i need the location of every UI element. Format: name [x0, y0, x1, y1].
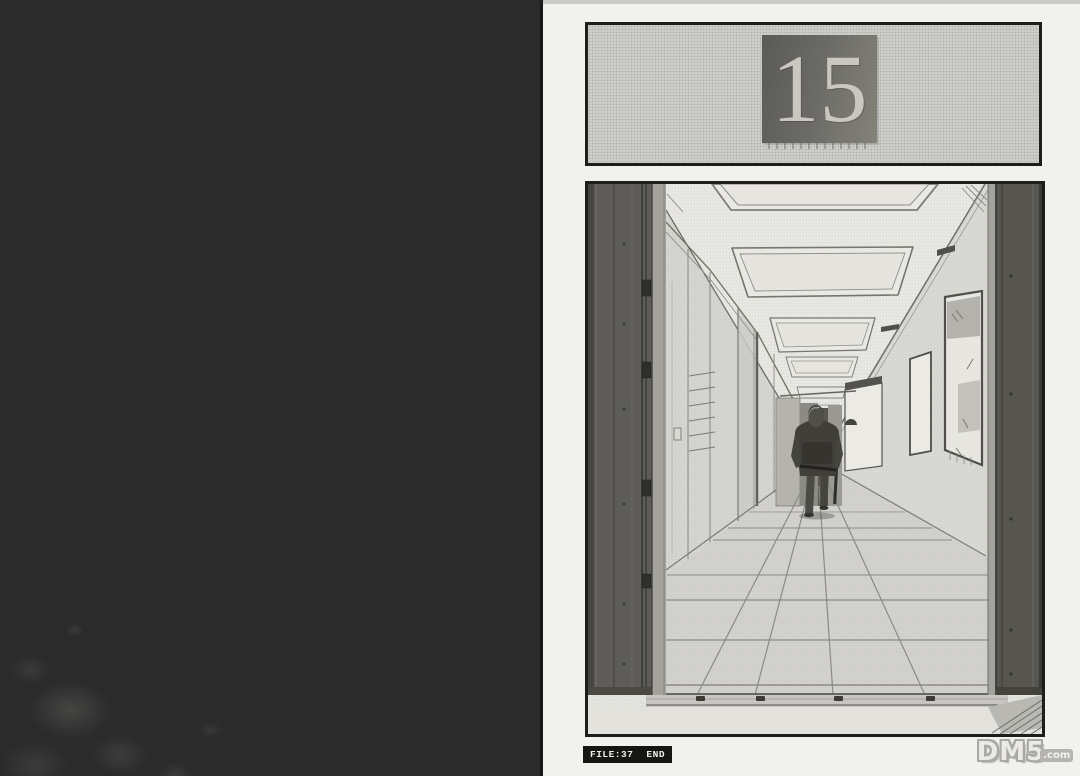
- scan-noise: [0, 560, 320, 776]
- file-label: FILE:37: [590, 749, 633, 760]
- end-label: END: [646, 749, 665, 760]
- left-door-frame: [588, 184, 666, 695]
- chapter-number-plate: 15: [762, 35, 877, 143]
- chapter-number: 15: [772, 39, 868, 139]
- dm5-watermark: DM5.com: [970, 737, 1080, 767]
- chapter-number-panel: 15: [585, 22, 1042, 166]
- file-end-caption: FILE:37 END: [583, 746, 672, 763]
- door-track: [646, 693, 1008, 707]
- hallway-panel: [585, 181, 1045, 737]
- hallway-illustration: [588, 184, 1042, 734]
- manga-page-spread: 15: [0, 0, 1080, 776]
- scan-top-shade: [540, 0, 1080, 4]
- right-door-frame: [988, 184, 1042, 695]
- watermark-site-name: DM5: [977, 737, 1046, 767]
- watermark-tld: .com: [1040, 749, 1073, 762]
